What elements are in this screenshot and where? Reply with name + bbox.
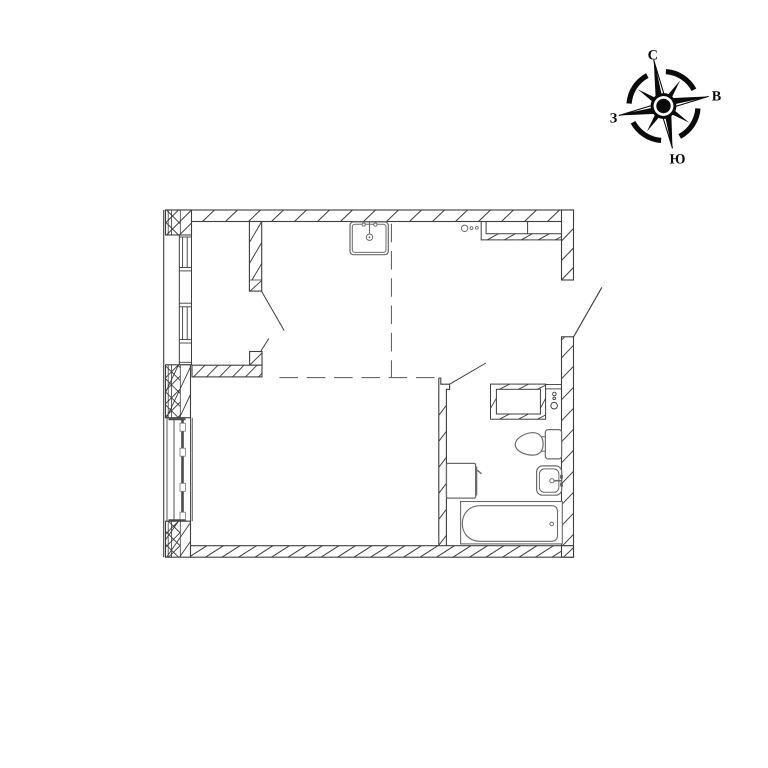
svg-text:С: С xyxy=(648,47,658,63)
svg-text:В: В xyxy=(712,88,722,104)
svg-text:З: З xyxy=(610,110,618,126)
svg-text:Ю: Ю xyxy=(670,152,686,168)
